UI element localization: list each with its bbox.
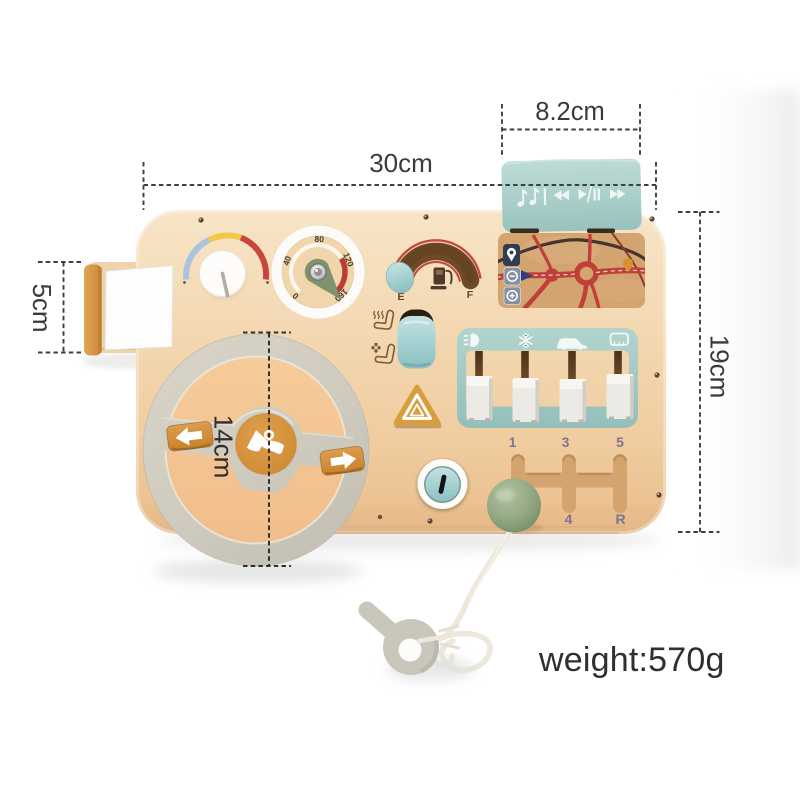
- svg-text:5: 5: [616, 434, 624, 450]
- svg-text:4: 4: [565, 511, 573, 527]
- svg-text:weight:570g: weight:570g: [538, 641, 725, 679]
- svg-text:1: 1: [509, 434, 517, 450]
- svg-text:80: 80: [314, 234, 324, 244]
- svg-text:5cm: 5cm: [27, 283, 57, 332]
- svg-text:R: R: [615, 511, 625, 527]
- svg-text:8.2cm: 8.2cm: [535, 98, 604, 126]
- svg-text:19cm: 19cm: [705, 335, 735, 399]
- svg-text:F: F: [467, 289, 474, 301]
- svg-text:3: 3: [562, 434, 570, 450]
- svg-text:14cm: 14cm: [209, 415, 239, 479]
- svg-text:30cm: 30cm: [369, 148, 433, 178]
